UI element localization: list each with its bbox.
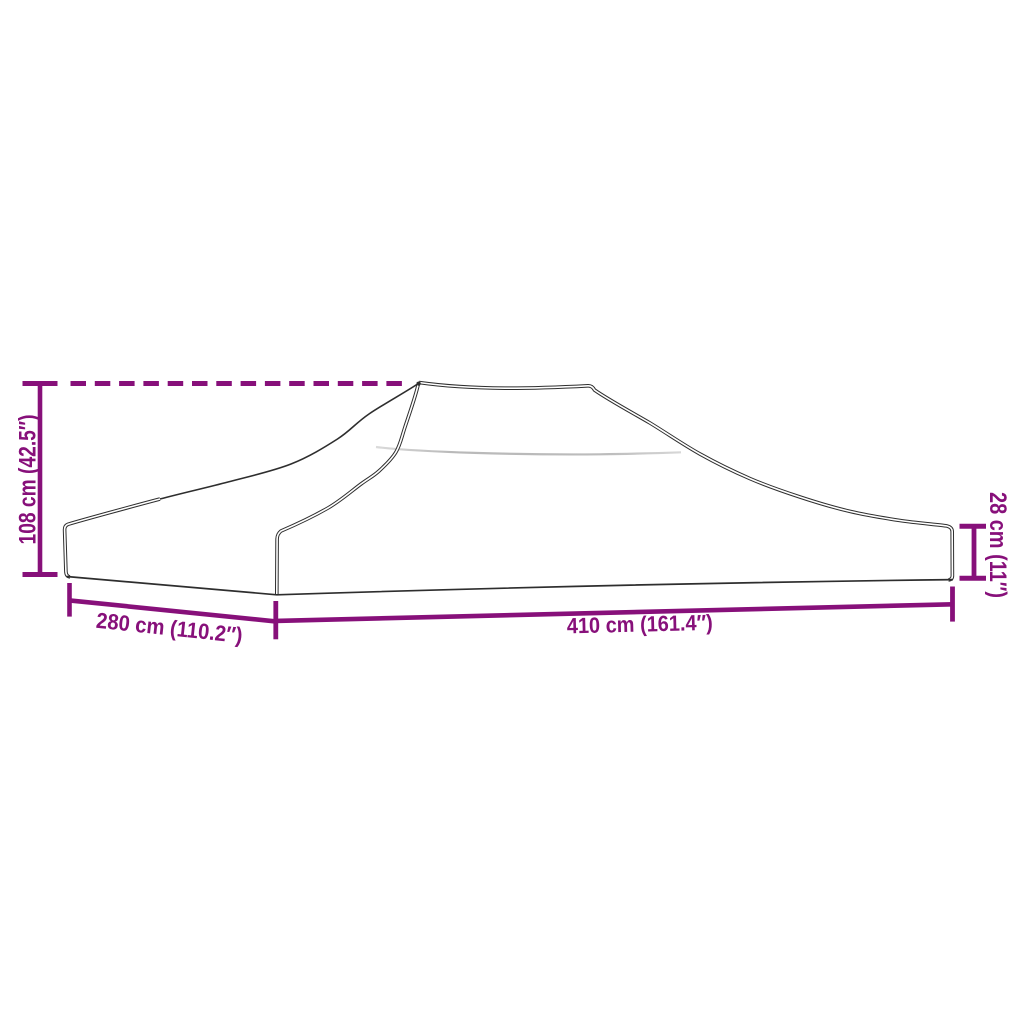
svg-text:28 cm (11″): 28 cm (11″) xyxy=(984,492,1011,598)
svg-text:108 cm (42.5″): 108 cm (42.5″) xyxy=(15,415,42,545)
svg-text:410 cm (161.4″): 410 cm (161.4″) xyxy=(567,610,714,639)
